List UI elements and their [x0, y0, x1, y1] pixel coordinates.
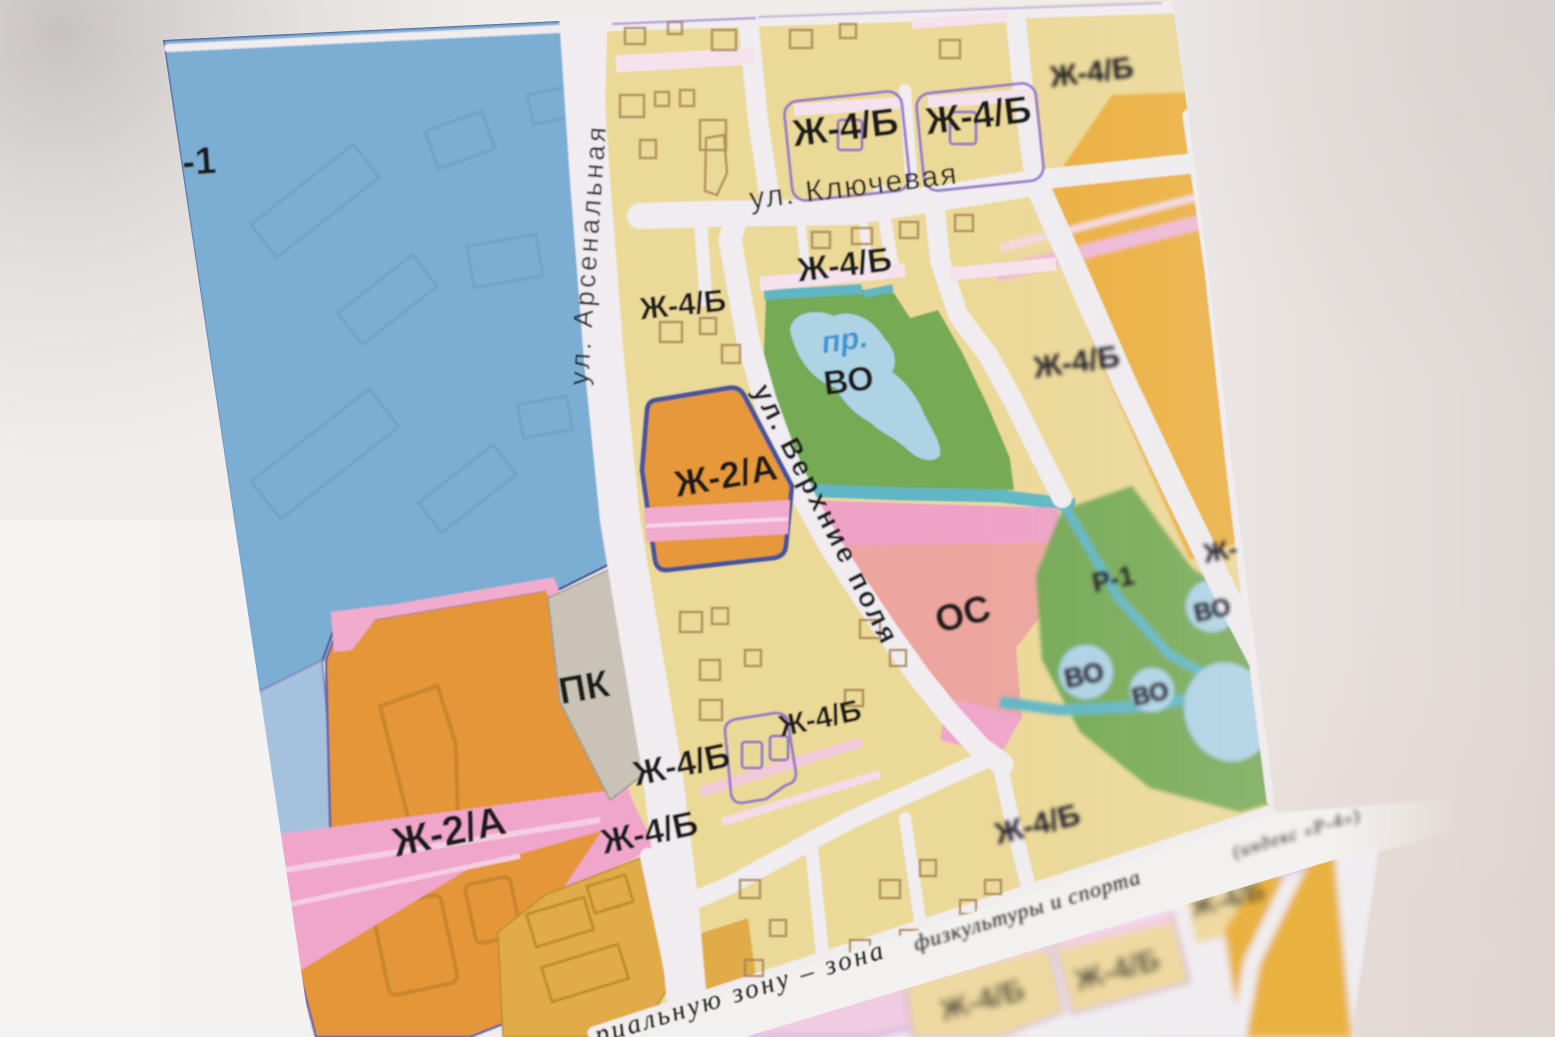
svg-text:ВО: ВО	[821, 359, 875, 403]
svg-text:-1: -1	[181, 140, 218, 184]
svg-text:ПК: ПК	[555, 663, 613, 713]
svg-text:пр.: пр.	[819, 319, 870, 360]
svg-text:Ж-: Ж-	[1200, 533, 1239, 569]
